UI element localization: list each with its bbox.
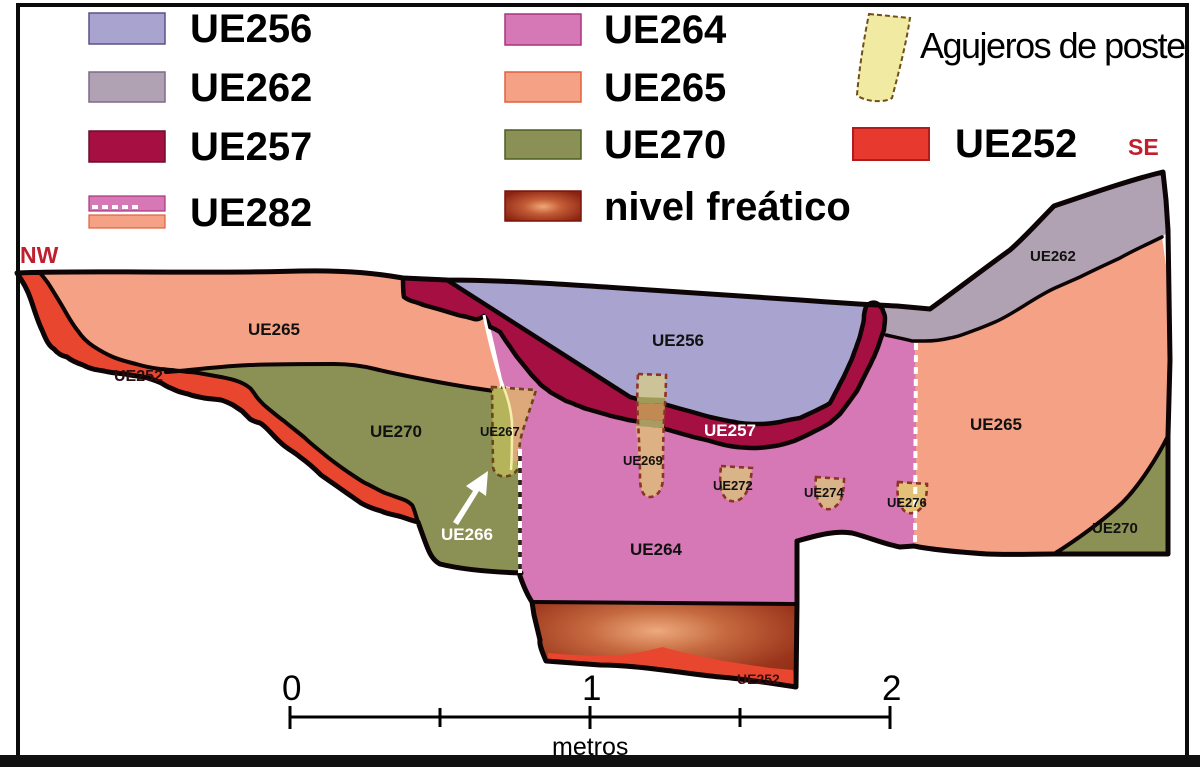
svg-text:UE252: UE252 [737, 671, 780, 687]
svg-text:0: 0 [282, 669, 301, 708]
svg-text:UE252: UE252 [114, 368, 163, 385]
svg-text:UE262: UE262 [1030, 248, 1076, 265]
svg-text:UE265: UE265 [970, 415, 1022, 434]
svg-text:UE265: UE265 [604, 66, 726, 110]
svg-text:UE274: UE274 [804, 485, 845, 500]
svg-text:UE269: UE269 [623, 453, 663, 468]
svg-text:Agujeros de poste: Agujeros de poste [920, 25, 1185, 66]
svg-text:UE272: UE272 [713, 478, 753, 493]
svg-text:UE264: UE264 [630, 540, 683, 559]
svg-text:UE257: UE257 [190, 125, 312, 169]
svg-text:UE270: UE270 [1092, 520, 1138, 537]
svg-text:UE257: UE257 [704, 421, 756, 440]
svg-text:UE262: UE262 [190, 66, 312, 110]
svg-text:UE256: UE256 [190, 7, 312, 51]
svg-text:nivel freático: nivel freático [604, 185, 851, 229]
svg-text:UE270: UE270 [370, 422, 422, 441]
svg-text:UE282: UE282 [190, 191, 312, 235]
svg-text:UE276: UE276 [887, 495, 927, 510]
svg-text:2: 2 [882, 669, 901, 708]
svg-text:UE267: UE267 [480, 424, 520, 439]
svg-text:UE265: UE265 [248, 320, 300, 339]
svg-text:UE270: UE270 [604, 123, 726, 167]
svg-text:UE266: UE266 [441, 525, 493, 544]
svg-text:NW: NW [20, 242, 59, 268]
svg-text:UE256: UE256 [652, 331, 704, 350]
svg-text:1: 1 [582, 669, 601, 708]
svg-text:UE252: UE252 [955, 122, 1077, 166]
svg-text:UE264: UE264 [604, 8, 727, 52]
svg-text:SE: SE [1128, 134, 1159, 160]
